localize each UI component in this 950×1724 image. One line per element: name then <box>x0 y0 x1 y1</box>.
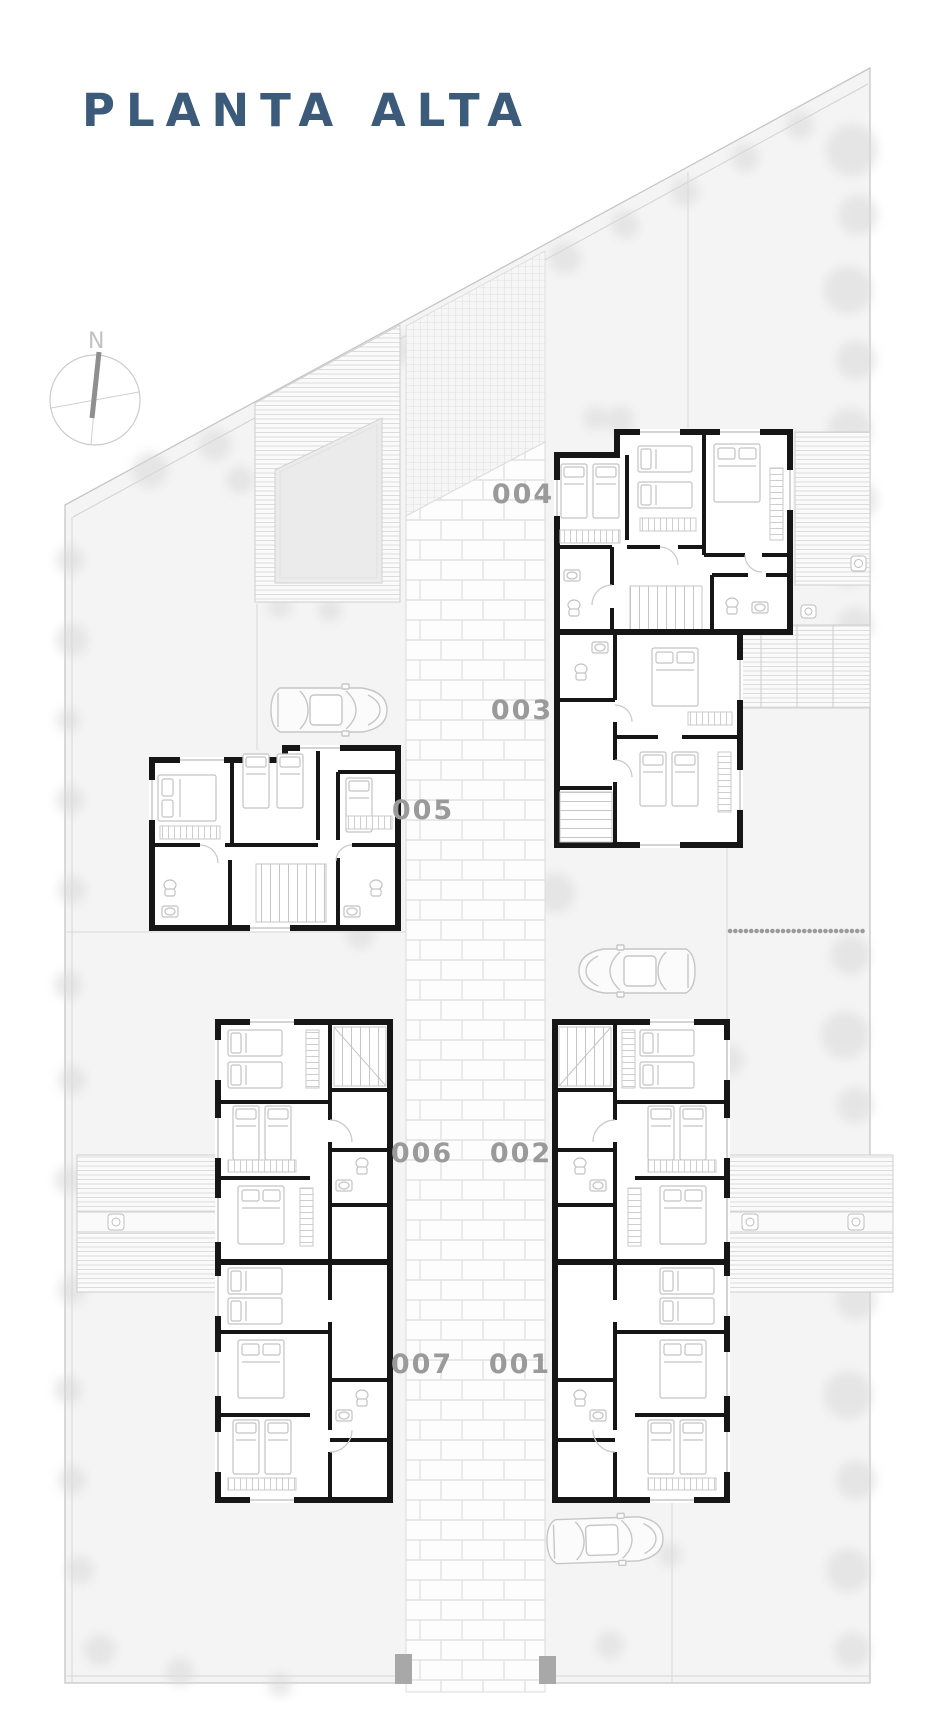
building-west-006-007 <box>215 1019 390 1503</box>
site-plan: N 004 003 005 006 002 007 001 <box>0 0 950 1724</box>
unit-004-plan <box>554 429 793 632</box>
car-icon <box>546 1512 664 1568</box>
building-east-002-001 <box>555 1019 730 1503</box>
gate-post-right <box>539 1656 556 1684</box>
unit-label-002: 002 <box>490 1138 552 1169</box>
north-compass: N <box>50 329 140 445</box>
unit-label-004: 004 <box>492 479 554 510</box>
page-title: PLANTA ALTA <box>82 84 533 137</box>
paver-walkway <box>406 442 545 1692</box>
unit-005-plan <box>149 745 398 931</box>
compass-north-label: N <box>88 329 105 354</box>
pool-deck <box>255 325 400 602</box>
pergola-east <box>727 1155 893 1292</box>
unit-label-003: 003 <box>491 695 553 726</box>
car-icon <box>271 684 387 736</box>
unit-label-005: 005 <box>392 795 454 826</box>
car-icon <box>579 945 695 997</box>
unit-label-006: 006 <box>391 1138 453 1169</box>
unit-label-007: 007 <box>391 1349 453 1380</box>
pergola-west <box>77 1155 218 1292</box>
unit-label-001: 001 <box>489 1349 551 1380</box>
terrace-004-east <box>795 432 870 585</box>
gate-post-left <box>395 1654 412 1684</box>
unit-003-plan <box>557 632 743 848</box>
floor-plan-page: PLANTA ALTA <box>0 0 950 1724</box>
